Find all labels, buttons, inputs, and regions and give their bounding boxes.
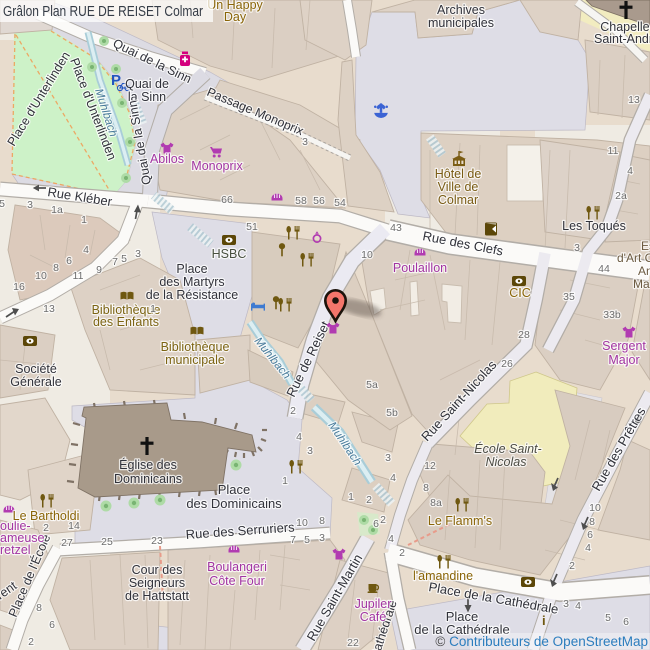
svg-text:12: 12 xyxy=(424,460,436,472)
svg-text:22: 22 xyxy=(347,637,359,649)
svg-text:Colmar: Colmar xyxy=(438,193,478,207)
svg-text:4: 4 xyxy=(83,244,89,256)
svg-text:10: 10 xyxy=(589,502,601,514)
svg-text:6: 6 xyxy=(49,619,55,631)
svg-text:56: 56 xyxy=(313,195,325,207)
svg-text:Cour des: Cour des xyxy=(132,563,183,577)
svg-text:3: 3 xyxy=(574,242,580,254)
svg-text:Hôtel de: Hôtel de xyxy=(435,167,482,181)
svg-text:des Martyrs: des Martyrs xyxy=(159,275,224,289)
svg-text:Ma: Ma xyxy=(633,277,650,291)
svg-text:Archives: Archives xyxy=(437,3,485,17)
svg-text:10: 10 xyxy=(35,270,47,282)
svg-text:Boulangeri: Boulangeri xyxy=(207,560,267,574)
svg-text:16: 16 xyxy=(13,281,25,293)
svg-text:44: 44 xyxy=(598,263,610,275)
svg-text:© Contributeurs de OpenStreetM: © Contributeurs de OpenStreetMap xyxy=(435,634,648,649)
svg-text:43: 43 xyxy=(390,222,402,234)
svg-text:6: 6 xyxy=(66,255,72,267)
svg-text:4: 4 xyxy=(296,431,302,443)
svg-text:P: P xyxy=(111,72,121,89)
svg-text:5: 5 xyxy=(0,198,5,210)
svg-text:Le Flamm's: Le Flamm's xyxy=(428,514,492,528)
svg-text:8: 8 xyxy=(53,262,59,274)
svg-text:École Saint-: École Saint- xyxy=(474,441,541,456)
svg-text:2: 2 xyxy=(380,514,386,526)
svg-text:54: 54 xyxy=(334,197,346,209)
svg-text:2: 2 xyxy=(290,405,296,417)
svg-text:26: 26 xyxy=(501,358,513,370)
svg-text:des Dominicains: des Dominicains xyxy=(186,496,282,511)
svg-text:51: 51 xyxy=(246,221,258,233)
svg-text:13: 13 xyxy=(628,94,640,106)
svg-text:66: 66 xyxy=(221,194,233,206)
svg-text:3: 3 xyxy=(135,248,141,260)
svg-text:2: 2 xyxy=(366,494,372,506)
svg-text:3: 3 xyxy=(302,136,308,148)
svg-text:1: 1 xyxy=(348,491,354,503)
svg-text:2: 2 xyxy=(399,547,405,559)
svg-text:municipales: municipales xyxy=(428,16,494,30)
svg-text:3: 3 xyxy=(563,598,569,610)
svg-text:2: 2 xyxy=(43,522,49,534)
svg-text:1: 1 xyxy=(150,303,156,315)
svg-text:4: 4 xyxy=(585,542,591,554)
svg-text:11: 11 xyxy=(73,270,84,282)
svg-text:5b: 5b xyxy=(386,407,398,419)
svg-text:2a: 2a xyxy=(615,190,627,202)
svg-text:Société: Société xyxy=(15,362,57,376)
svg-text:25: 25 xyxy=(101,536,113,548)
svg-text:Saint-André: Saint-André xyxy=(594,32,650,46)
svg-text:de la Résistance: de la Résistance xyxy=(146,288,238,302)
svg-text:5a: 5a xyxy=(366,379,378,391)
svg-text:Église des: Église des xyxy=(119,457,177,472)
svg-text:de Hattstatt: de Hattstatt xyxy=(125,589,189,603)
svg-text:10: 10 xyxy=(296,517,308,529)
svg-text:1: 1 xyxy=(81,214,87,226)
svg-text:Place: Place xyxy=(218,482,251,497)
svg-text:6: 6 xyxy=(623,616,629,628)
svg-text:Poulaillon: Poulaillon xyxy=(393,261,447,275)
svg-text:35: 35 xyxy=(563,291,575,303)
svg-text:Jupiler: Jupiler xyxy=(355,597,392,611)
svg-text:l'amandine: l'amandine xyxy=(413,569,473,583)
svg-text:3: 3 xyxy=(27,199,33,211)
svg-text:Sergent: Sergent xyxy=(602,339,646,353)
svg-text:11: 11 xyxy=(608,145,619,157)
svg-text:8: 8 xyxy=(36,602,42,614)
svg-text:4: 4 xyxy=(390,472,396,484)
svg-text:3: 3 xyxy=(319,532,325,544)
svg-text:Les Toqués: Les Toqués xyxy=(562,219,626,233)
svg-text:Major: Major xyxy=(608,353,639,367)
svg-text:1: 1 xyxy=(282,475,288,487)
svg-text:5: 5 xyxy=(605,612,611,624)
svg-text:Seigneurs: Seigneurs xyxy=(129,576,185,590)
svg-text:2: 2 xyxy=(569,560,575,572)
svg-text:4: 4 xyxy=(575,600,581,612)
svg-text:33b: 33b xyxy=(603,309,621,321)
svg-text:8a: 8a xyxy=(430,497,442,509)
svg-text:6: 6 xyxy=(587,529,593,541)
svg-text:Day: Day xyxy=(224,10,247,24)
svg-text:8: 8 xyxy=(319,515,325,527)
svg-text:8: 8 xyxy=(423,482,429,494)
svg-text:Grâlon Plan RUE DE REISET Colm: Grâlon Plan RUE DE REISET Colmar xyxy=(3,4,203,20)
svg-text:9: 9 xyxy=(96,264,102,276)
svg-text:des Enfants: des Enfants xyxy=(93,315,159,329)
svg-text:Dominicains: Dominicains xyxy=(114,472,182,486)
svg-text:4: 4 xyxy=(388,533,394,545)
svg-text:28: 28 xyxy=(518,329,530,341)
svg-text:Nicolas: Nicolas xyxy=(486,455,527,469)
svg-text:7: 7 xyxy=(112,256,118,268)
svg-text:14: 14 xyxy=(68,520,80,532)
svg-text:Bibliothèque: Bibliothèque xyxy=(161,340,230,354)
svg-text:retzel: retzel xyxy=(0,543,31,557)
svg-text:Café: Café xyxy=(360,610,386,624)
svg-text:13: 13 xyxy=(43,303,55,315)
svg-text:Quai de: Quai de xyxy=(125,77,169,91)
svg-text:1a: 1a xyxy=(51,204,63,216)
svg-text:Abilos: Abilos xyxy=(150,152,184,166)
svg-text:An: An xyxy=(638,264,650,278)
svg-text:8: 8 xyxy=(589,516,595,528)
svg-text:d'Art Co: d'Art Co xyxy=(617,251,650,265)
svg-text:5: 5 xyxy=(304,534,310,546)
svg-text:27: 27 xyxy=(61,537,73,549)
svg-text:23: 23 xyxy=(151,535,163,547)
svg-text:4: 4 xyxy=(627,165,633,177)
svg-text:Générale: Générale xyxy=(10,375,61,389)
svg-text:5: 5 xyxy=(121,253,127,265)
svg-text:3: 3 xyxy=(307,445,313,457)
svg-text:CIC: CIC xyxy=(509,286,531,300)
svg-text:Place: Place xyxy=(176,262,207,276)
svg-text:6: 6 xyxy=(373,518,379,530)
svg-text:HSBC: HSBC xyxy=(212,247,247,261)
svg-text:Monoprix: Monoprix xyxy=(191,159,243,173)
svg-text:Côte Four: Côte Four xyxy=(209,574,265,588)
svg-text:municipale: municipale xyxy=(165,353,225,367)
svg-text:58: 58 xyxy=(295,195,307,207)
svg-text:i: i xyxy=(542,613,546,628)
svg-text:7: 7 xyxy=(290,534,296,546)
svg-text:2: 2 xyxy=(28,636,34,648)
svg-text:3: 3 xyxy=(385,452,391,464)
svg-text:Ville de: Ville de xyxy=(438,180,479,194)
svg-text:10: 10 xyxy=(361,249,373,261)
